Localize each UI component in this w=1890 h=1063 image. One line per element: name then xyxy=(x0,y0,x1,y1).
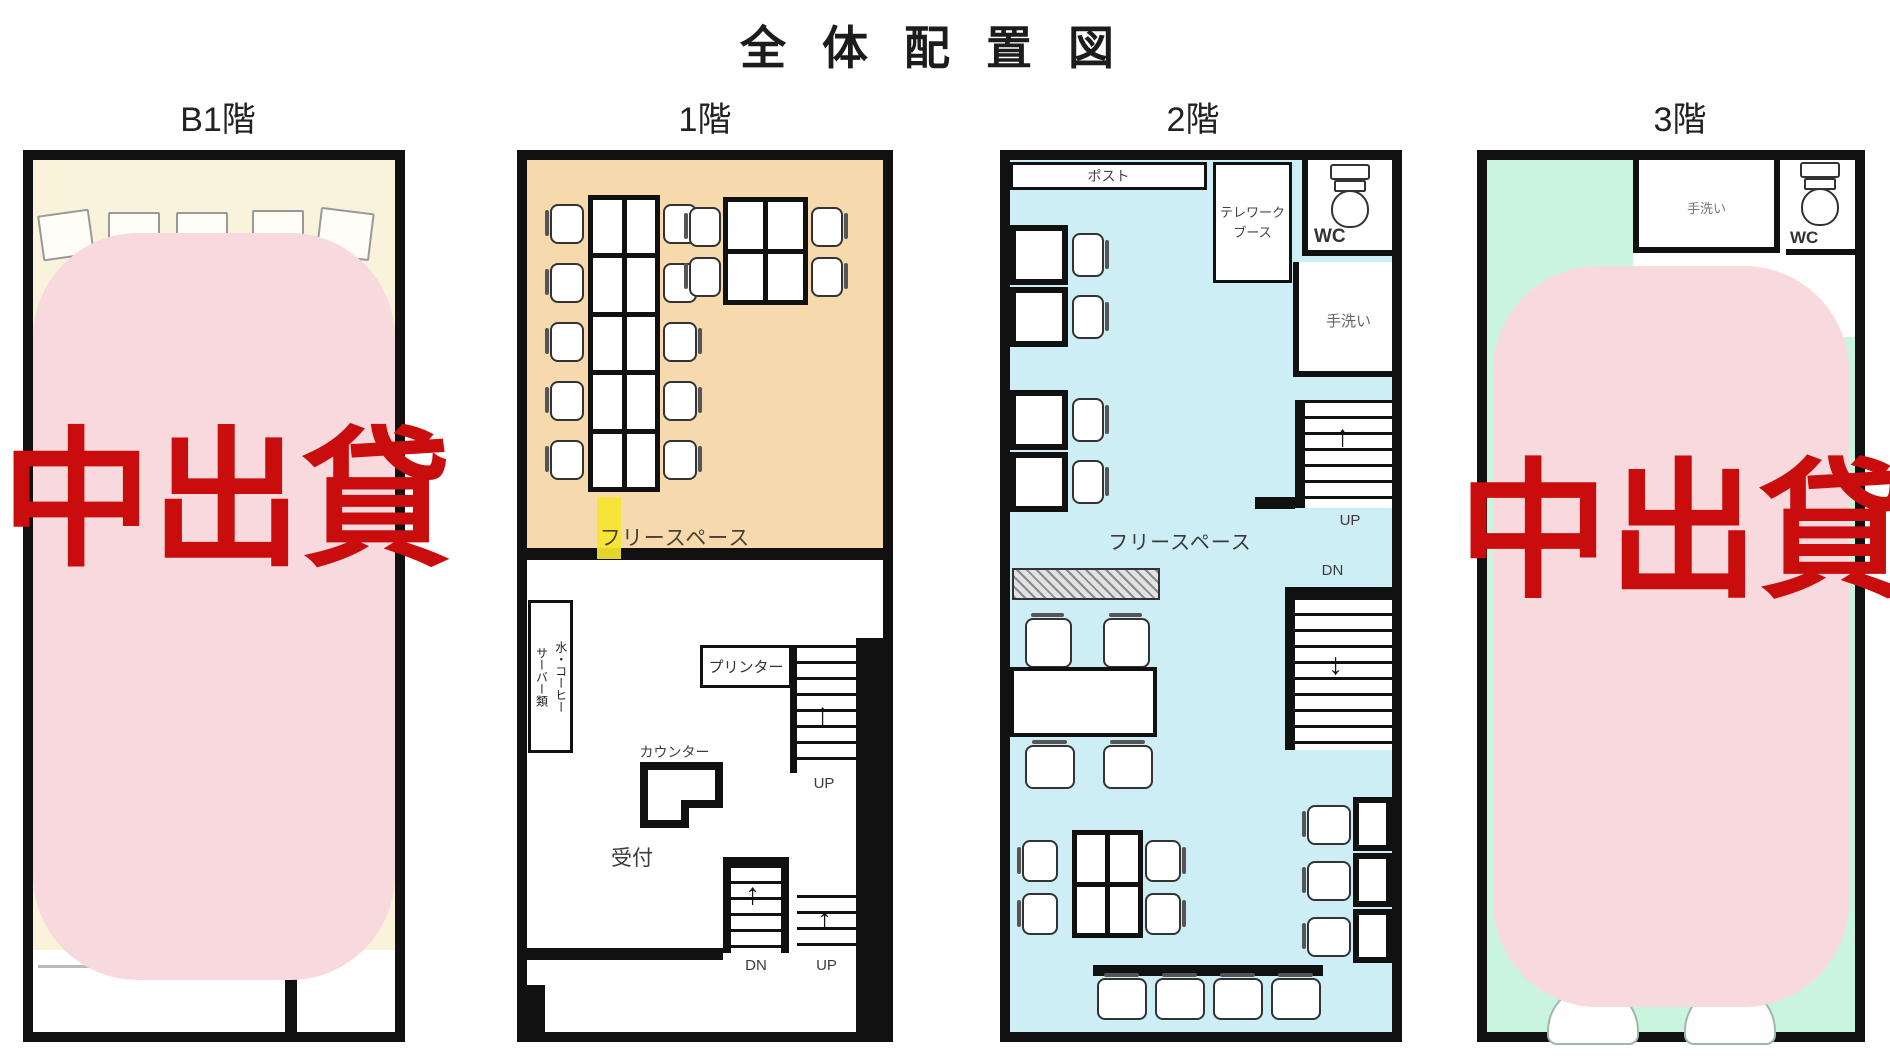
up-arrow-icon: ↑ xyxy=(815,700,830,730)
chair-icon xyxy=(1307,861,1351,901)
up-arrow-icon: ↑ xyxy=(745,880,760,910)
chair-icon xyxy=(663,440,697,480)
stairs-dn-label: DN xyxy=(726,957,786,974)
chair-icon xyxy=(1022,893,1058,935)
chair-icon xyxy=(1072,460,1104,504)
chair-icon xyxy=(1307,917,1351,957)
chair-icon xyxy=(1072,295,1104,339)
stairs-up2-label: UP xyxy=(797,957,856,974)
room-handwash: 手洗い xyxy=(1293,262,1392,377)
chair-icon xyxy=(1213,978,1263,1020)
desk-icon xyxy=(1010,287,1068,347)
server-box: 水・コーヒー サーバー類 xyxy=(528,600,573,753)
up-arrow-icon: ↑ xyxy=(1335,422,1350,452)
room-handwash: 手洗い xyxy=(1633,160,1780,253)
desk-icon xyxy=(1010,390,1068,450)
desk-icon xyxy=(1353,853,1392,907)
chair-icon xyxy=(1145,893,1181,935)
room-wc: WC xyxy=(1786,160,1855,255)
floor-label-1f: 1階 xyxy=(625,92,785,141)
stairs-dn-label: DN xyxy=(1310,562,1355,579)
square-table-icon xyxy=(723,197,808,305)
badge-rented: 貸出中 xyxy=(33,233,395,980)
bench-icon xyxy=(1012,568,1160,600)
freespace-label: フリースペース xyxy=(585,522,765,552)
wc-label: WC xyxy=(1314,226,1346,248)
handwash-label: 手洗い xyxy=(1299,310,1398,331)
desk-icon xyxy=(1353,909,1392,963)
desk-icon xyxy=(1353,797,1392,851)
printer-box: プリンター xyxy=(700,645,792,688)
chair-icon xyxy=(550,440,584,480)
chair-icon xyxy=(811,207,843,247)
square-table-icon xyxy=(1072,830,1143,938)
stairs-up xyxy=(1295,400,1392,508)
table-icon xyxy=(1010,667,1157,737)
floor-label-2f: 2階 xyxy=(1113,92,1273,141)
chair-icon xyxy=(550,204,584,244)
chair-icon xyxy=(689,257,721,297)
chair-icon xyxy=(1072,233,1104,277)
floor-label-b1: B1階 xyxy=(138,92,298,141)
room-telework: テレワーク ブース xyxy=(1213,162,1292,283)
stairs-up-label: UP xyxy=(790,775,858,792)
chair-icon xyxy=(663,381,697,421)
chair-icon xyxy=(1307,805,1351,845)
wall-stub xyxy=(1255,497,1295,509)
chair-icon xyxy=(1155,978,1205,1020)
wc-label: WC xyxy=(1790,228,1818,248)
up-arrow-icon: ↑ xyxy=(817,905,832,935)
toilet-icon xyxy=(1798,162,1842,222)
chair-icon xyxy=(1072,398,1104,442)
handwash-label: 手洗い xyxy=(1639,198,1774,217)
badge-rented-text: 貸出中 xyxy=(0,420,439,794)
chair-icon xyxy=(550,381,584,421)
long-table-icon xyxy=(588,195,660,492)
floorplan-1f: フリースペース 水・コーヒー サーバー類 プリンター ↑ UP カウンター 受付… xyxy=(517,150,893,1042)
stairwell-wall xyxy=(856,638,883,1032)
counter-label: カウンター xyxy=(627,742,722,762)
interior-wall xyxy=(527,948,723,960)
freespace-label: フリースペース xyxy=(1090,526,1270,555)
chair-icon xyxy=(689,207,721,247)
desk-icon xyxy=(1010,225,1068,285)
chair-icon xyxy=(1145,840,1181,882)
chair-icon xyxy=(1022,840,1058,882)
stairs-up-label: UP xyxy=(1325,512,1375,529)
partition-wall xyxy=(285,978,297,1032)
desk-icon xyxy=(1010,452,1068,512)
floor-label-3f: 3階 xyxy=(1600,92,1760,141)
stool-icon xyxy=(1103,618,1150,668)
floorplan-3f: 手洗い WC 貸出中 xyxy=(1477,150,1865,1042)
floorplan-b1: 貸出中 xyxy=(23,150,405,1042)
chair-icon xyxy=(663,322,697,362)
post-shelf: ポスト xyxy=(1010,162,1207,190)
page-title: 全体配置図 xyxy=(545,12,1345,78)
wall-stub xyxy=(527,985,545,1032)
chair-icon xyxy=(1271,978,1321,1020)
badge-rented: 貸出中 xyxy=(1493,266,1849,1007)
reception-label: 受付 xyxy=(582,842,682,872)
toilet-icon xyxy=(1328,164,1372,226)
chair-icon xyxy=(811,257,843,297)
room-wc: WC xyxy=(1302,160,1392,256)
counter-icon xyxy=(640,762,723,828)
chair-icon xyxy=(1103,745,1153,789)
stool-icon xyxy=(1025,618,1072,668)
chair-icon xyxy=(1097,978,1147,1020)
badge-rented-text: 貸出中 xyxy=(1446,451,1890,822)
chair-icon xyxy=(1025,745,1075,789)
floorplan-2f: ポスト テレワーク ブース WC 手洗い フリースペース xyxy=(1000,150,1402,1042)
chair-icon xyxy=(550,322,584,362)
counter-notch xyxy=(681,800,723,828)
down-arrow-icon: ↓ xyxy=(1328,650,1343,680)
chair-icon xyxy=(550,263,584,303)
